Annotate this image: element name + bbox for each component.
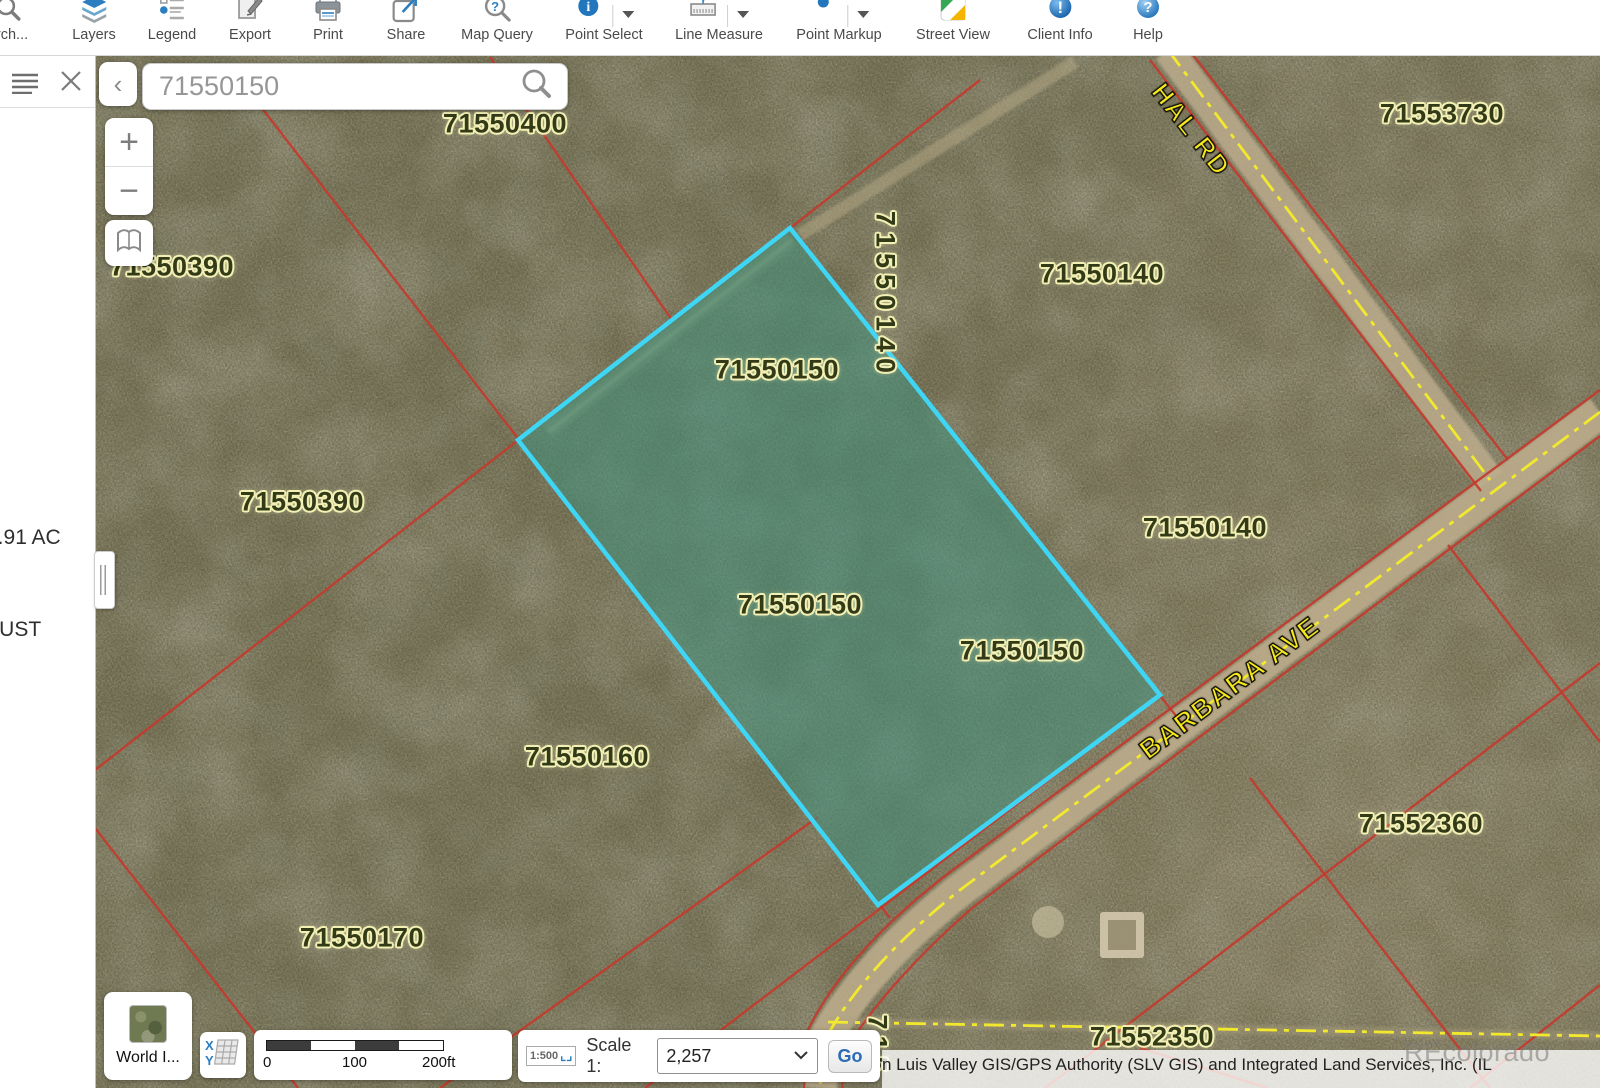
results-panel xyxy=(0,55,96,1088)
search-icon xyxy=(0,0,23,30)
toolbar-label: Street View xyxy=(916,27,990,43)
panel-collapse-button[interactable]: ‹ xyxy=(99,62,137,106)
map-canvas[interactable] xyxy=(0,0,1600,1088)
coordinates-button[interactable]: XY xyxy=(200,1032,246,1078)
line-measure-icon xyxy=(688,0,718,30)
map-search-box xyxy=(142,63,568,110)
point-markup-dropdown[interactable] xyxy=(847,5,870,27)
chevron-down-icon xyxy=(621,7,635,25)
scalebar-tick: 100 xyxy=(342,1054,367,1071)
scale-control: 1:500⌞⌟ Scale 1: 2,257 Go xyxy=(518,1030,880,1082)
svg-text:!: ! xyxy=(1057,0,1063,17)
toolbar-label: Client Info xyxy=(1027,27,1092,43)
panel-resize-handle[interactable] xyxy=(94,551,115,609)
toolbar-item-point-select[interactable]: i Point Select xyxy=(565,0,642,43)
toolbar-label: Legend xyxy=(148,27,196,43)
svg-text:i: i xyxy=(586,0,590,15)
toolbar-item-print[interactable]: Print xyxy=(313,0,343,43)
toolbar-label: Help xyxy=(1133,27,1163,43)
xy-grid-icon: XY xyxy=(203,1035,243,1076)
bookmarks-button[interactable] xyxy=(105,220,153,266)
chevron-down-icon xyxy=(856,7,870,25)
legend-icon xyxy=(157,0,187,30)
chevron-down-icon xyxy=(793,1047,809,1065)
parcel-owner-text: RUST xyxy=(0,618,41,642)
toolbar-label: Line Measure xyxy=(675,27,763,43)
aerial-basemap xyxy=(0,0,1600,1088)
scale-ratio-icon: 1:500⌞⌟ xyxy=(526,1046,576,1066)
basemap-selector[interactable]: World I... xyxy=(104,992,192,1080)
menu-icon[interactable] xyxy=(12,72,38,99)
toolbar-label: Point Markup xyxy=(796,27,881,43)
toolbar-item-map-query[interactable]: ? Map Query xyxy=(461,0,533,43)
toolbar-item-point-markup[interactable]: Point Markup xyxy=(796,0,881,43)
svg-text:?: ? xyxy=(491,0,499,14)
svg-text:X: X xyxy=(205,1038,214,1053)
toolbar-item-line-measure[interactable]: Line Measure xyxy=(675,0,763,43)
scale-select[interactable]: 2,257 xyxy=(657,1038,818,1074)
export-icon xyxy=(235,0,265,30)
search-icon[interactable] xyxy=(519,67,553,106)
toolbar-label: Layers xyxy=(72,27,116,43)
help-icon: ? xyxy=(1133,0,1163,30)
toolbar-label: Print xyxy=(313,27,343,43)
grip-icon xyxy=(100,565,109,595)
search-input[interactable] xyxy=(157,70,519,103)
scalebar: 0 100 200ft xyxy=(254,1030,512,1080)
close-icon[interactable] xyxy=(60,70,82,97)
svg-text:?: ? xyxy=(1143,0,1152,16)
scalebar-tick: 200ft xyxy=(422,1054,455,1071)
map-query-icon: ? xyxy=(482,0,512,30)
basemap-label: World I... xyxy=(116,1049,180,1067)
scalebar-graphic xyxy=(266,1040,444,1051)
scalebar-tick: 0 xyxy=(263,1054,271,1071)
share-icon xyxy=(391,0,421,30)
toolbar-label: Share xyxy=(387,27,426,43)
point-markup-icon xyxy=(808,0,838,30)
zoom-out-button[interactable]: − xyxy=(105,167,153,215)
street-view-icon xyxy=(938,0,968,30)
toolbar-item-street-view[interactable]: Street View xyxy=(916,0,990,43)
toolbar-label: Export xyxy=(229,27,271,43)
toolbar-item-export[interactable]: Export xyxy=(229,0,271,43)
watermark-text: REcolorado xyxy=(1404,1037,1550,1068)
basemap-thumbnail xyxy=(129,1005,167,1043)
parcel-acreage-text: 5.91 AC xyxy=(0,526,61,550)
point-select-icon: i xyxy=(573,0,603,30)
svg-text:Y: Y xyxy=(205,1053,214,1068)
toolbar-label: arch... xyxy=(0,27,28,43)
toolbar-item-share[interactable]: Share xyxy=(387,0,426,43)
toolbar-item-help[interactable]: ? Help xyxy=(1133,0,1163,43)
layers-icon xyxy=(79,0,109,30)
toolbar-item-legend[interactable]: Legend xyxy=(148,0,196,43)
scale-prefix-label: Scale 1: xyxy=(586,1035,647,1077)
chevron-left-icon: ‹ xyxy=(114,69,123,100)
toolbar-item-search[interactable]: arch... xyxy=(0,0,28,43)
scale-go-button[interactable]: Go xyxy=(828,1040,872,1073)
toolbar-item-client-info[interactable]: ! Client Info xyxy=(1027,0,1092,43)
book-icon xyxy=(114,227,144,260)
main-toolbar: arch... Layers Legend Export Print Share… xyxy=(0,0,1600,56)
client-info-icon: ! xyxy=(1045,0,1075,30)
results-panel-header xyxy=(0,55,95,108)
point-select-dropdown[interactable] xyxy=(612,5,635,27)
chevron-down-icon xyxy=(736,7,750,25)
toolbar-label: Map Query xyxy=(461,27,533,43)
zoom-in-button[interactable]: + xyxy=(105,118,153,167)
zoom-control: + − xyxy=(105,118,153,215)
toolbar-label: Point Select xyxy=(565,27,642,43)
print-icon xyxy=(313,0,343,30)
line-measure-dropdown[interactable] xyxy=(727,5,750,27)
toolbar-item-layers[interactable]: Layers xyxy=(72,0,116,43)
